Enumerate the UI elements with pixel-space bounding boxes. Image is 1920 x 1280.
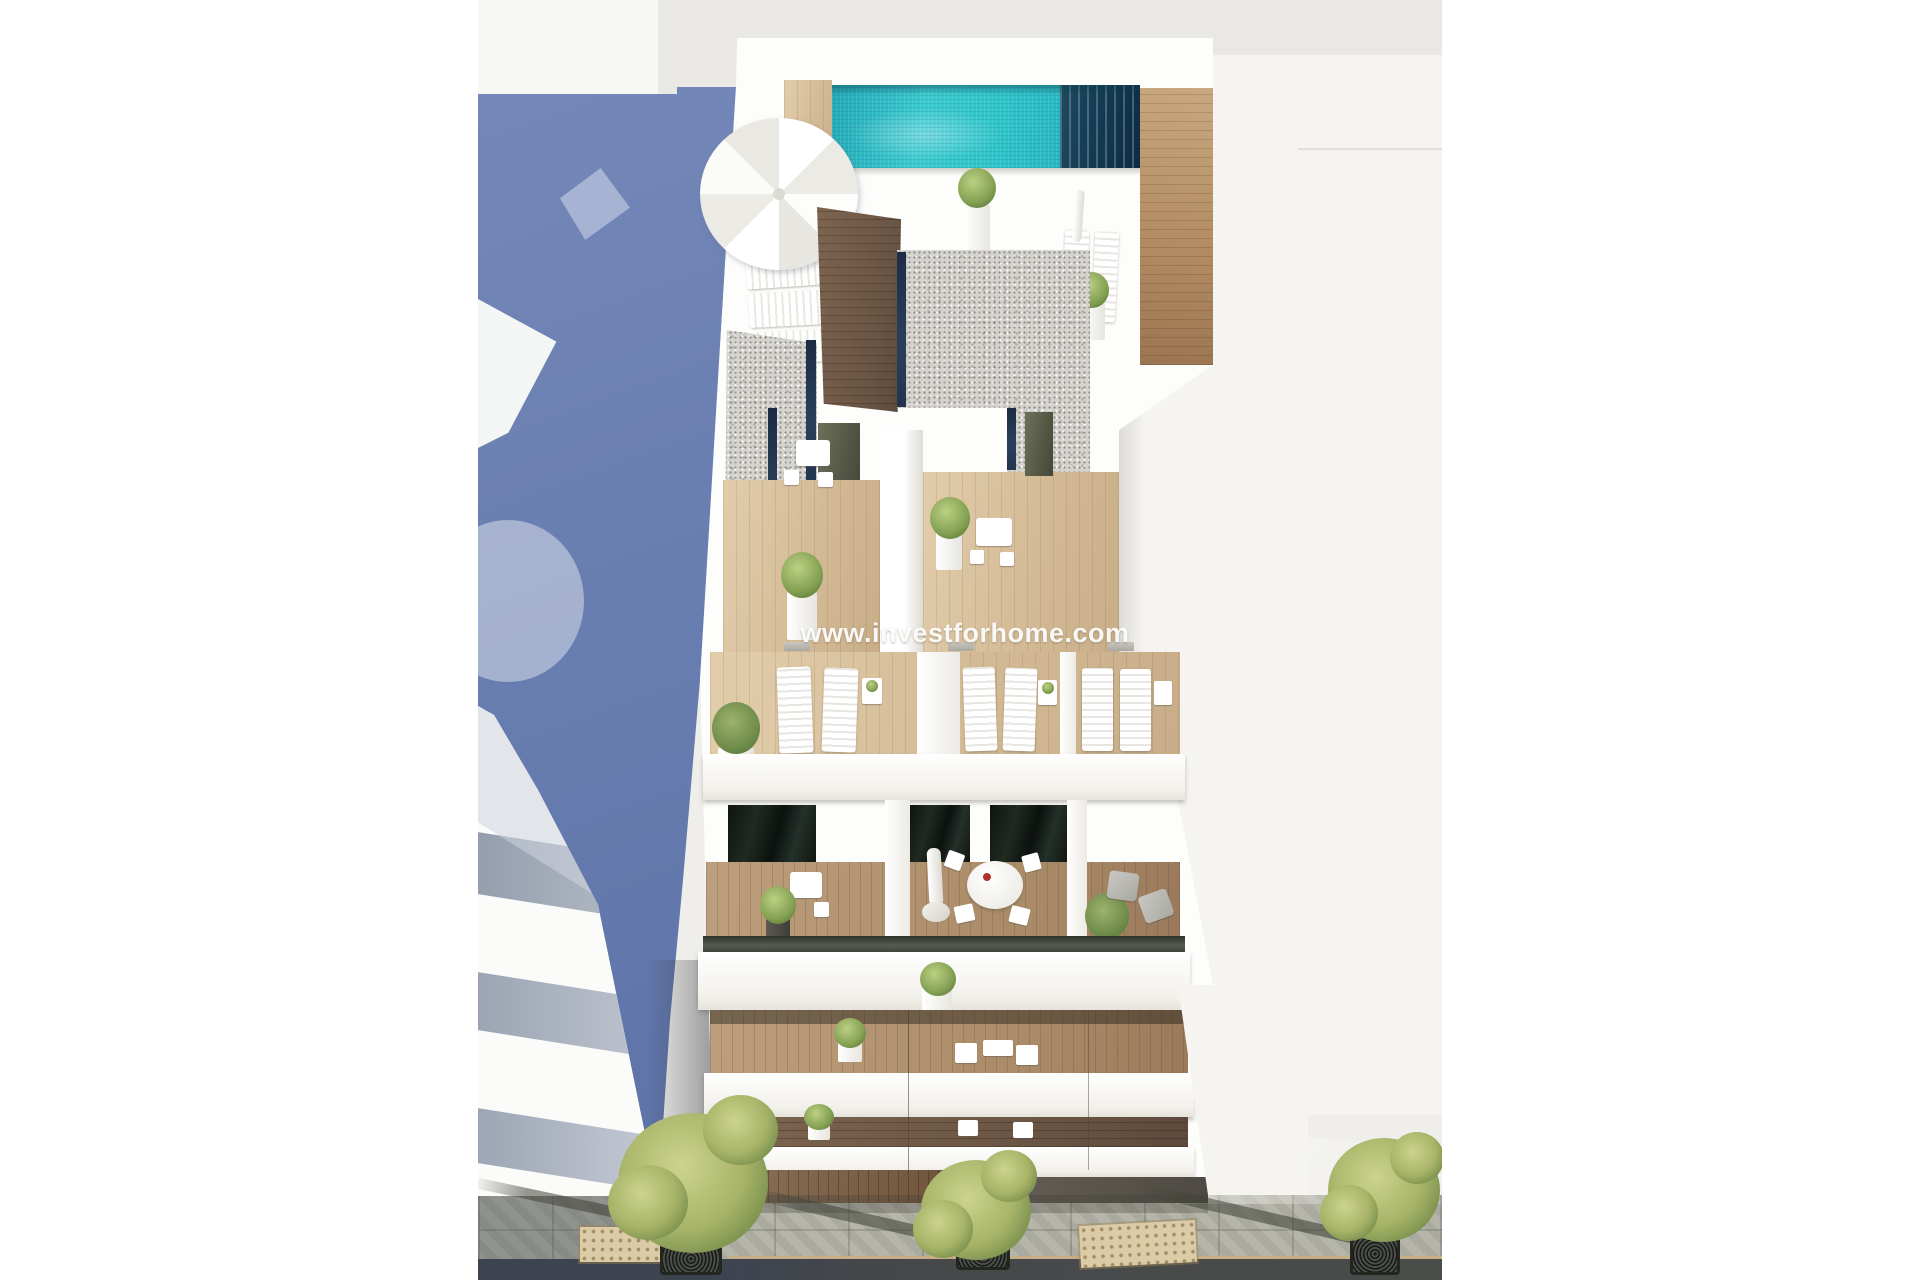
facade-seam-line [908,1010,909,1175]
balcony-chair [955,1043,977,1063]
balcony-plant [804,1104,834,1130]
street-tree [913,1150,1043,1272]
terrace-chair [818,472,833,487]
street-tree [1320,1130,1442,1258]
watermark: www.investforhome.com [800,618,1129,649]
terrace-divider-wall [917,652,960,756]
terrace-plant [781,552,823,598]
terrace-parapet [703,754,1185,800]
balcony-divider-pillar [1067,800,1087,950]
balcony-plant [834,1018,866,1048]
balcony-door [728,805,816,862]
skylight-strip [1007,408,1016,470]
closed-parasol [926,848,943,907]
sun-lounger [1120,669,1151,751]
terrace-table [796,440,830,466]
pool-parasol-center [773,188,785,200]
lounger-side-table [1154,681,1172,705]
sun-lounger [748,290,826,328]
neighbor-roof-edge-line [1298,148,1442,150]
terrace-bush [712,702,760,754]
roof-walkway [1140,88,1213,365]
roof-plant [958,168,996,208]
skylight-strip [897,252,906,407]
balcony-chair [1016,1045,1038,1065]
terrace-chair [1000,552,1014,566]
terrace-plant [930,497,970,539]
terrace-table [976,518,1012,546]
plank-walkway [817,207,901,412]
parasol-base [922,902,950,922]
pool-dark-reflection [1060,85,1140,168]
page: www.investforhome.com [0,0,1920,1280]
table-decor [983,873,991,881]
terrace-door [1025,412,1053,476]
sun-lounger [1003,667,1038,751]
balcony-divider-pillar [885,800,910,950]
sun-lounger [1082,668,1113,751]
balcony-armchair [1106,870,1140,902]
sun-lounger [777,666,814,753]
terrace-chair [784,470,799,485]
terrace-chair [970,550,984,564]
tactile-paving-mat [1079,1220,1197,1268]
balcony-chair [1013,1122,1033,1138]
balcony-table [983,1040,1013,1056]
sun-lounger [822,667,859,752]
balcony-chair [958,1120,978,1136]
side-table-plant [866,680,878,692]
pool-top-shade [832,85,1140,95]
balcony-floor-shade [710,1010,1188,1024]
slab-plant [920,962,956,996]
balcony-table [790,872,822,898]
terrace-divider-wall [1060,652,1076,756]
facade-seam-line [1088,1010,1089,1170]
side-table-plant [1042,682,1054,694]
render-photo: www.investforhome.com [478,0,1442,1280]
roof-plant-pot [964,205,990,257]
balcony-chair [814,902,829,917]
round-dining-table [967,861,1023,909]
balcony-plant [760,886,796,924]
street-tree [608,1095,788,1270]
sun-lounger [963,666,998,751]
glass-railing [703,936,1185,953]
